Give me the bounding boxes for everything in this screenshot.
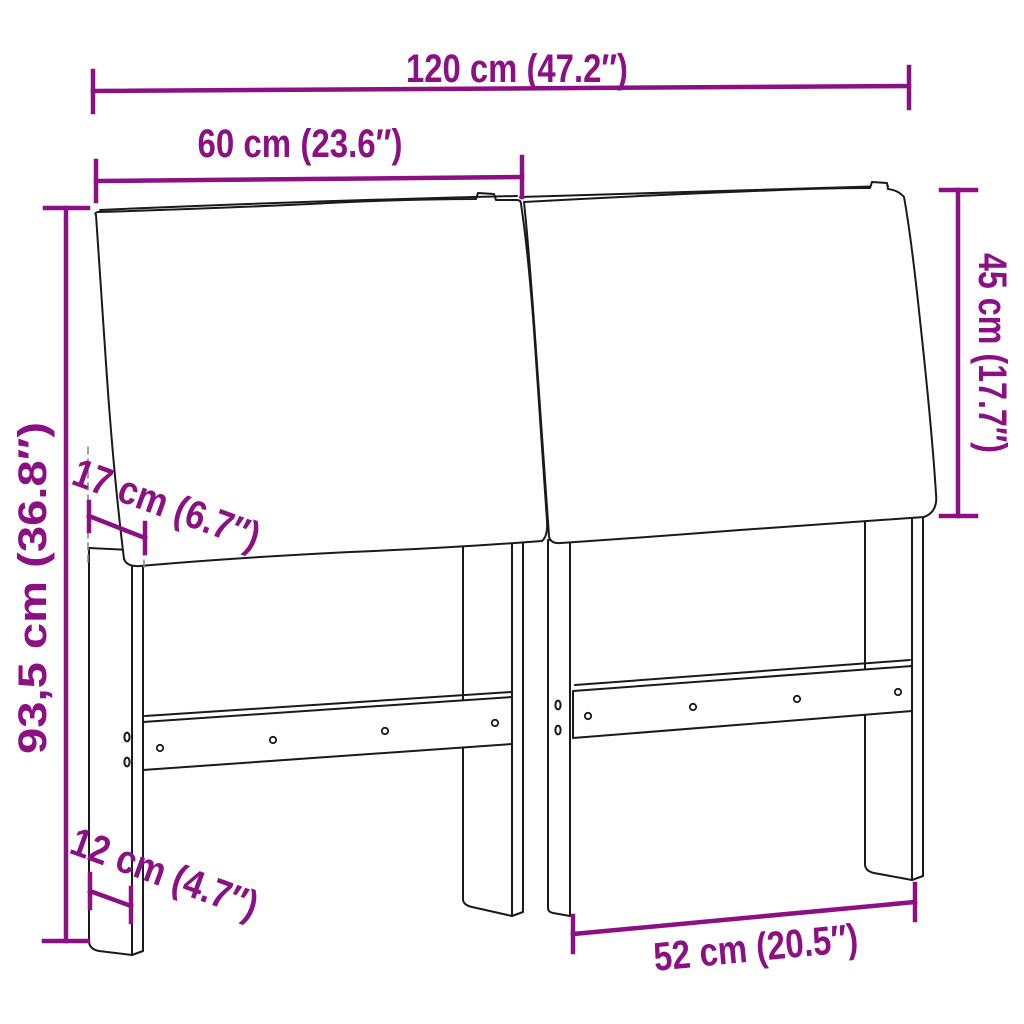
total-width-label: 120 cm (47.2″) <box>406 47 628 91</box>
dimension-line <box>96 177 522 181</box>
bolt <box>555 701 560 710</box>
cushion-height-label: 45 cm (17.7″) <box>970 253 1014 453</box>
right-rail <box>573 666 912 738</box>
dimension-diagram: 120 cm (47.2″) 60 cm (23.6″) 93,5 cm (36… <box>0 0 1024 1024</box>
bolt <box>124 733 129 742</box>
right-cushion <box>524 182 936 543</box>
left-leg-side <box>132 550 143 955</box>
total-height-label: 93,5 cm (36.8″) <box>11 422 55 754</box>
half-width-label: 60 cm (23.6″) <box>198 122 403 166</box>
screw-hole <box>157 745 163 751</box>
middle-left-leg-side <box>512 540 523 916</box>
bolt <box>124 758 129 767</box>
left-rail <box>143 697 512 770</box>
screw-hole <box>270 737 276 743</box>
right-leg-side <box>912 510 923 880</box>
screw-hole <box>895 689 901 695</box>
line-art-layer <box>88 182 936 955</box>
screw-hole <box>585 713 591 719</box>
screw-hole <box>492 720 498 726</box>
screw-hole <box>794 696 800 702</box>
bolt <box>555 726 560 735</box>
screw-hole <box>382 728 388 734</box>
diagram-canvas: 120 cm (47.2″) 60 cm (23.6″) 93,5 cm (36… <box>0 0 1024 1024</box>
screw-hole <box>690 704 696 710</box>
